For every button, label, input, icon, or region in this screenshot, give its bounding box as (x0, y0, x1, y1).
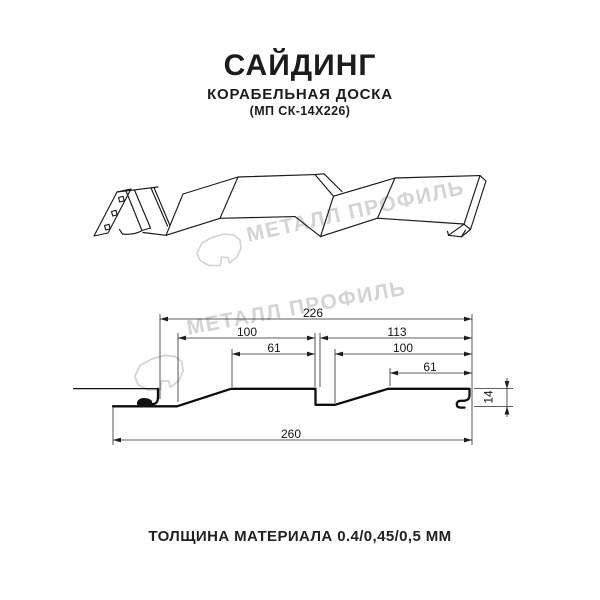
profile-3d-view (94, 174, 486, 237)
profile-outline (113, 389, 470, 408)
material-thickness-note: ТОЛЩИНА МАТЕРИАЛА 0.4/0,45/0,5 ММ (0, 528, 600, 545)
page-title: САЙДИНГ (0, 49, 600, 83)
dim-label-260: 260 (281, 427, 301, 441)
dim-label-61-left: 61 (267, 341, 280, 355)
dimension-lines (113, 314, 513, 445)
dim-label-113: 113 (387, 325, 406, 339)
cross-section-drawing (73, 389, 470, 408)
dim-label-61-right: 61 (423, 360, 436, 374)
dim-label-100-left: 100 (237, 325, 257, 339)
dim-label-100-right: 100 (393, 341, 413, 355)
nail-hole-icon (112, 210, 118, 216)
watermark-logo-icon (135, 355, 183, 390)
dim-label-226: 226 (303, 306, 323, 320)
nail-strip (94, 189, 131, 236)
nail-hole-icon (119, 196, 125, 202)
product-subtitle: КОРАБЕЛЬНАЯ ДОСКА (0, 86, 600, 103)
lock-curl (138, 399, 152, 407)
dim-label-14: 14 (482, 390, 496, 403)
product-model: (МП СК-14Х226) (0, 104, 600, 118)
watermark-logo-icon (197, 234, 241, 266)
nail-hole-icon (105, 224, 111, 230)
dimension-arrows (113, 317, 509, 443)
